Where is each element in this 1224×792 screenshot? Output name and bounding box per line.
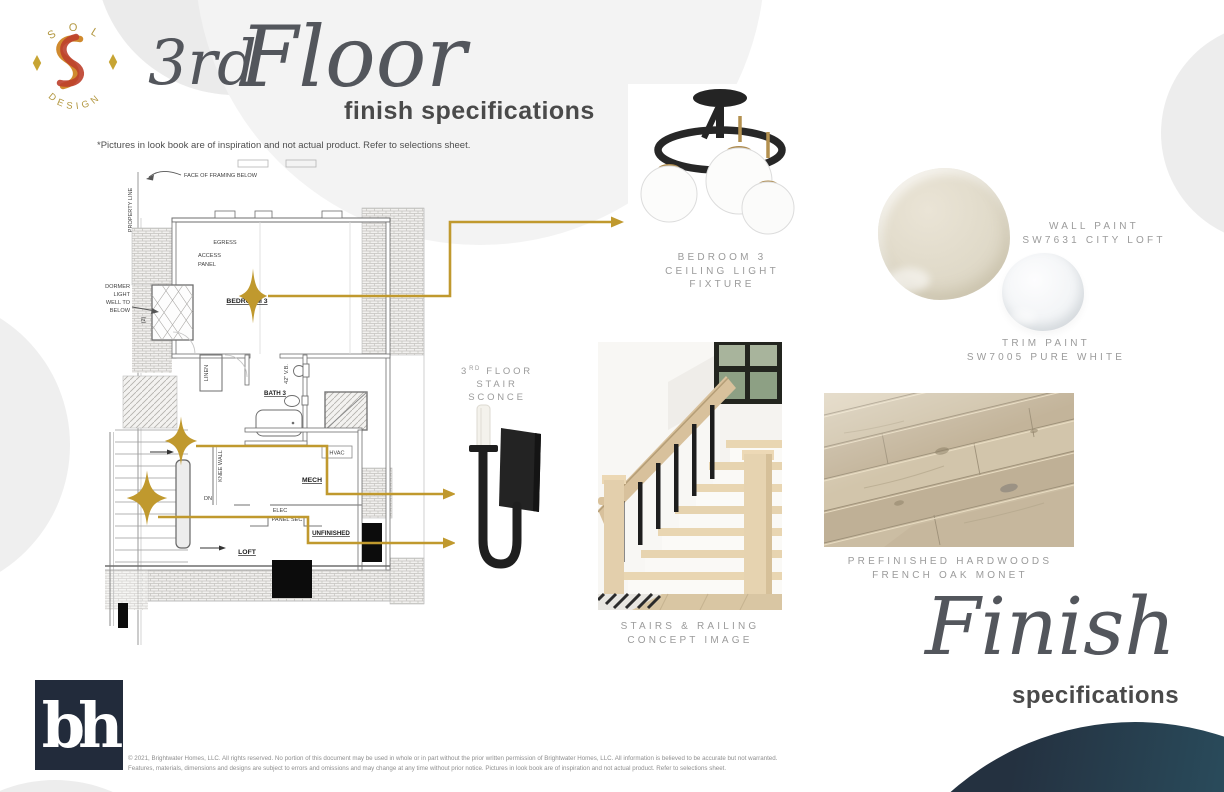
floor-plan: PROPERTY LINE FACE OF FRAMING BELOW bbox=[100, 158, 440, 648]
wall-paint-swatch bbox=[878, 168, 1010, 300]
svg-text:ELEC: ELEC bbox=[273, 508, 288, 514]
svg-text:(2): (2) bbox=[141, 316, 147, 323]
stairs-photo bbox=[598, 342, 782, 610]
bg-circle-bottom-left bbox=[0, 780, 200, 792]
svg-text:KNEE WALL: KNEE WALL bbox=[218, 450, 224, 482]
wall-paint-label: WALL PAINT SW7631 CITY LOFT bbox=[1008, 220, 1180, 247]
sol-diamond-right-icon bbox=[109, 54, 117, 70]
hatch-right-strip bbox=[362, 208, 424, 355]
disclaimer-text: *Pictures in look book are of inspiratio… bbox=[97, 140, 470, 151]
hatch-left-mid bbox=[132, 285, 152, 340]
stairs-label: STAIRS & RAILING CONCEPT IMAGE bbox=[595, 620, 785, 647]
svg-text:WELL TO: WELL TO bbox=[106, 300, 131, 306]
copyright-line1: © 2021, Brightwater Homes, LLC. All righ… bbox=[128, 754, 928, 764]
bh-logo: bh bbox=[35, 680, 123, 770]
svg-text:PANEL SEC: PANEL SEC bbox=[272, 517, 303, 523]
svg-text:ACCESS: ACCESS bbox=[198, 253, 221, 259]
svg-text:HVAC: HVAC bbox=[329, 451, 344, 457]
svg-text:DN: DN bbox=[204, 496, 212, 502]
trim-paint-swatch bbox=[1002, 253, 1084, 331]
svg-text:MECH: MECH bbox=[302, 477, 322, 484]
svg-text:42" V.B.: 42" V.B. bbox=[284, 364, 290, 384]
page: S O L DESIGN 3rd Floor finish specificat… bbox=[0, 0, 1224, 792]
svg-text:BELOW: BELOW bbox=[110, 308, 131, 314]
trim-paint-label: TRIM PAINT SW7005 PURE WHITE bbox=[956, 337, 1136, 364]
copyright: © 2021, Brightwater Homes, LLC. All righ… bbox=[128, 754, 928, 773]
arrowhead-ceiling-light bbox=[611, 217, 624, 228]
hatch-left-upper bbox=[132, 228, 172, 285]
sol-monogram-icon bbox=[59, 37, 80, 86]
hatch-left-lower bbox=[132, 340, 172, 373]
hatch-bottom bbox=[148, 570, 390, 601]
footer-script-finish: Finish bbox=[925, 580, 1176, 673]
sol-arc-bottom-text: DESIGN bbox=[46, 91, 104, 112]
sconce-image bbox=[455, 400, 550, 575]
face-of-framing-note: FACE OF FRAMING BELOW bbox=[146, 171, 258, 180]
sol-diamond-left-icon bbox=[33, 55, 41, 71]
copyright-line2: Features, materials, dimensions and desi… bbox=[128, 764, 928, 774]
svg-text:PANEL: PANEL bbox=[198, 262, 216, 268]
ceiling-light-label: BEDROOM 3 CEILING LIGHT FIXTURE bbox=[632, 251, 812, 292]
title-script-floor: Floor bbox=[240, 8, 466, 106]
svg-text:LINEN: LINEN bbox=[204, 365, 210, 381]
hatch-left-roof bbox=[123, 376, 177, 428]
svg-text:LIGHT: LIGHT bbox=[114, 292, 131, 298]
chimney-mass bbox=[272, 560, 312, 598]
ceiling-light-image bbox=[628, 84, 798, 242]
svg-text:PROPERTY LINE: PROPERTY LINE bbox=[128, 187, 134, 232]
sconce-label: 3RD FLOOR STAIR SCONCE bbox=[430, 363, 564, 404]
svg-text:UNFINISHED: UNFINISHED bbox=[312, 530, 350, 537]
right-black-mass bbox=[362, 523, 382, 562]
bg-circle-top-right bbox=[1161, 23, 1224, 243]
hardwood-label: PREFINISHED HARDWOODS FRENCH OAK MONET bbox=[830, 555, 1070, 582]
title-subtitle: finish specifications bbox=[344, 97, 595, 126]
bg-circle-left-edge bbox=[0, 295, 70, 595]
footer-subtitle: specifications bbox=[1012, 682, 1179, 710]
sol-design-logo: S O L DESIGN bbox=[26, 13, 126, 117]
left-black-mass bbox=[118, 603, 128, 628]
svg-text:EGRESS: EGRESS bbox=[213, 240, 237, 246]
hardwood-photo bbox=[824, 393, 1074, 547]
hatch-bottom-right bbox=[390, 558, 424, 604]
svg-text:BATH 3: BATH 3 bbox=[264, 390, 286, 397]
svg-text:BEDROOM 3: BEDROOM 3 bbox=[226, 298, 267, 305]
svg-text:LOFT: LOFT bbox=[238, 549, 257, 556]
svg-text:FACE OF FRAMING BELOW: FACE OF FRAMING BELOW bbox=[184, 173, 258, 179]
svg-text:DORMER: DORMER bbox=[105, 284, 130, 290]
